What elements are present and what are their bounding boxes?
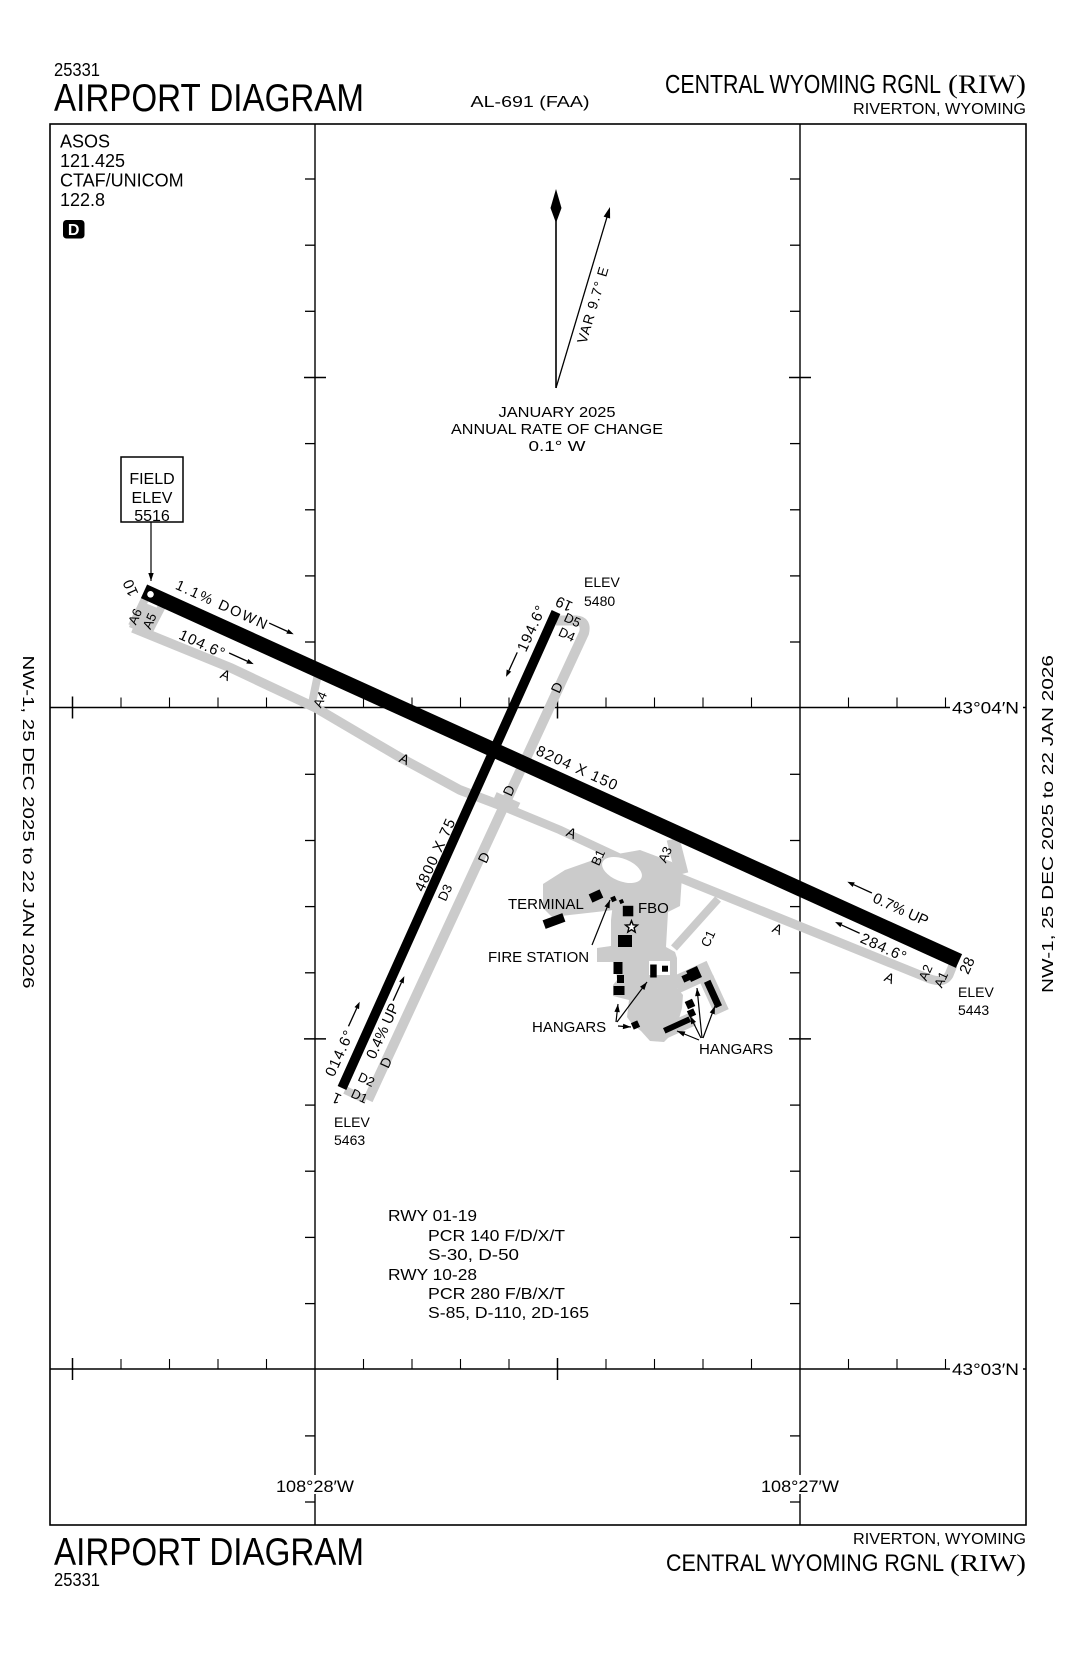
svg-text:S-30, D-50: S-30, D-50 <box>428 1247 519 1264</box>
svg-text:RWY 01-19: RWY 01-19 <box>388 1208 477 1225</box>
svg-text:43°04′N: 43°04′N <box>952 699 1019 718</box>
svg-text:PCR 140 F/D/X/T: PCR 140 F/D/X/T <box>428 1228 566 1245</box>
svg-text:121.425: 121.425 <box>60 151 125 171</box>
svg-text:HANGARS: HANGARS <box>532 1019 606 1036</box>
svg-text:S-85, D-110, 2D-165: S-85, D-110, 2D-165 <box>428 1305 589 1322</box>
svg-text:(RIW): (RIW) <box>948 70 1026 99</box>
svg-text:5443: 5443 <box>958 1002 989 1018</box>
svg-text:ELEV: ELEV <box>584 574 620 590</box>
svg-text:RIVERTON, WYOMING: RIVERTON, WYOMING <box>853 1531 1026 1548</box>
svg-text:CTAF/UNICOM: CTAF/UNICOM <box>60 171 184 191</box>
svg-text:HANGARS: HANGARS <box>699 1041 773 1058</box>
svg-text:ELEV: ELEV <box>132 490 173 507</box>
svg-text:108°28′W: 108°28′W <box>276 1477 354 1496</box>
svg-text:AL-691 (FAA): AL-691 (FAA) <box>471 94 590 111</box>
svg-text:PCR 280 F/B/X/T: PCR 280 F/B/X/T <box>428 1286 566 1303</box>
svg-text:0.1° W: 0.1° W <box>529 438 587 455</box>
svg-text:ANNUAL RATE OF CHANGE: ANNUAL RATE OF CHANGE <box>451 421 663 438</box>
svg-text:AIRPORT DIAGRAM: AIRPORT DIAGRAM <box>54 77 364 120</box>
svg-text:ASOS: ASOS <box>60 132 110 152</box>
svg-text:NW-1, 25 DEC 2025 to 22 JAN: NW-1, 25 DEC 2025 to 22 JAN 2026 <box>19 656 36 989</box>
svg-text:43°03′N: 43°03′N <box>952 1360 1019 1379</box>
svg-text:RIVERTON, WYOMING: RIVERTON, WYOMING <box>853 101 1026 118</box>
svg-text:5463: 5463 <box>334 1132 365 1148</box>
svg-text:5516: 5516 <box>134 508 170 525</box>
svg-text:AIRPORT DIAGRAM: AIRPORT DIAGRAM <box>54 1531 364 1574</box>
svg-text:ELEV: ELEV <box>334 1114 370 1130</box>
svg-text:JANUARY 2025: JANUARY 2025 <box>499 404 616 421</box>
svg-text:CENTRAL WYOMING RGNL: CENTRAL WYOMING RGNL <box>665 69 941 99</box>
svg-text:FIRE STATION: FIRE STATION <box>488 949 589 966</box>
svg-text:RWY 10-28: RWY 10-28 <box>388 1267 477 1284</box>
svg-text:122.8: 122.8 <box>60 190 105 210</box>
svg-text:D: D <box>68 222 80 239</box>
svg-text:108°27′W: 108°27′W <box>761 1477 839 1496</box>
svg-text:CENTRAL WYOMING RGNL: CENTRAL WYOMING RGNL <box>666 1550 944 1577</box>
svg-text:(RIW): (RIW) <box>950 1551 1026 1577</box>
svg-text:5480: 5480 <box>584 593 615 609</box>
svg-text:NW-1, 25 DEC 2025 to 22 JAN: NW-1, 25 DEC 2025 to 22 JAN 2026 <box>1040 655 1057 993</box>
svg-text:FIELD: FIELD <box>129 471 174 488</box>
svg-text:ELEV: ELEV <box>958 984 994 1000</box>
svg-text:25331: 25331 <box>54 1570 100 1590</box>
svg-text:TERMINAL: TERMINAL <box>508 896 584 913</box>
svg-text:FBO: FBO <box>638 900 669 917</box>
